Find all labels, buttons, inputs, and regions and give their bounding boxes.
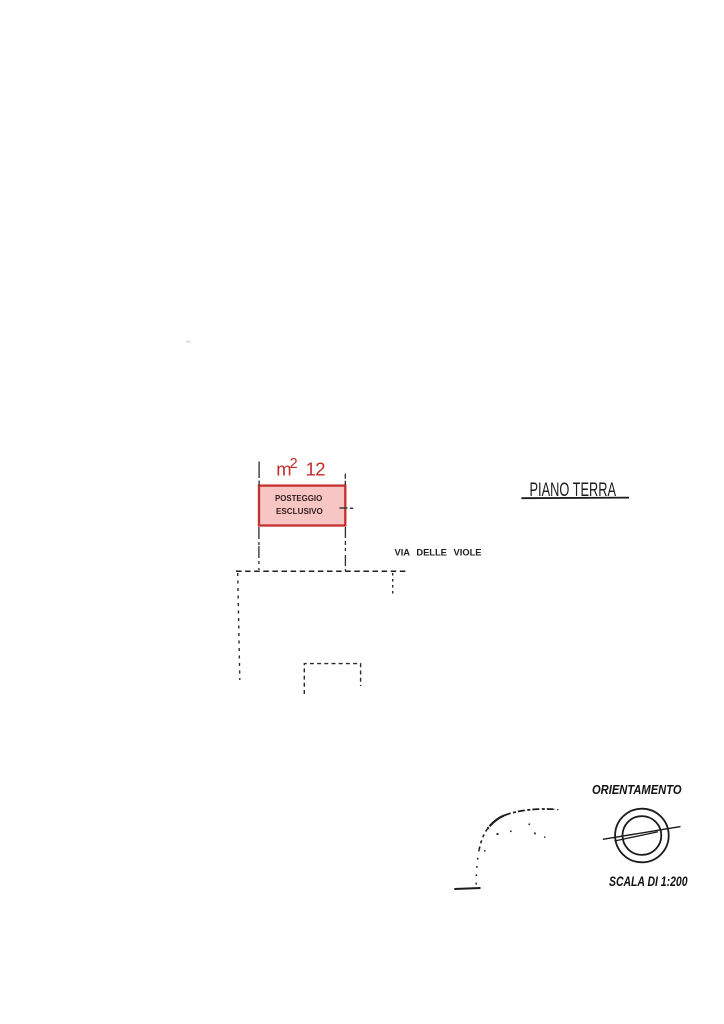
svg-text:ORIENTAMENTO: ORIENTAMENTO: [592, 782, 682, 797]
svg-text:VIA DELLE VIOLE: VIA DELLE VIOLE: [395, 547, 482, 557]
svg-text:2: 2: [290, 456, 298, 472]
svg-text:POSTEGGIO: POSTEGGIO: [275, 493, 323, 503]
svg-text:SCALA DI 1:200: SCALA DI 1:200: [609, 874, 688, 890]
svg-text:ESCLUSIVO: ESCLUSIVO: [276, 506, 323, 516]
svg-text:12: 12: [306, 459, 326, 480]
